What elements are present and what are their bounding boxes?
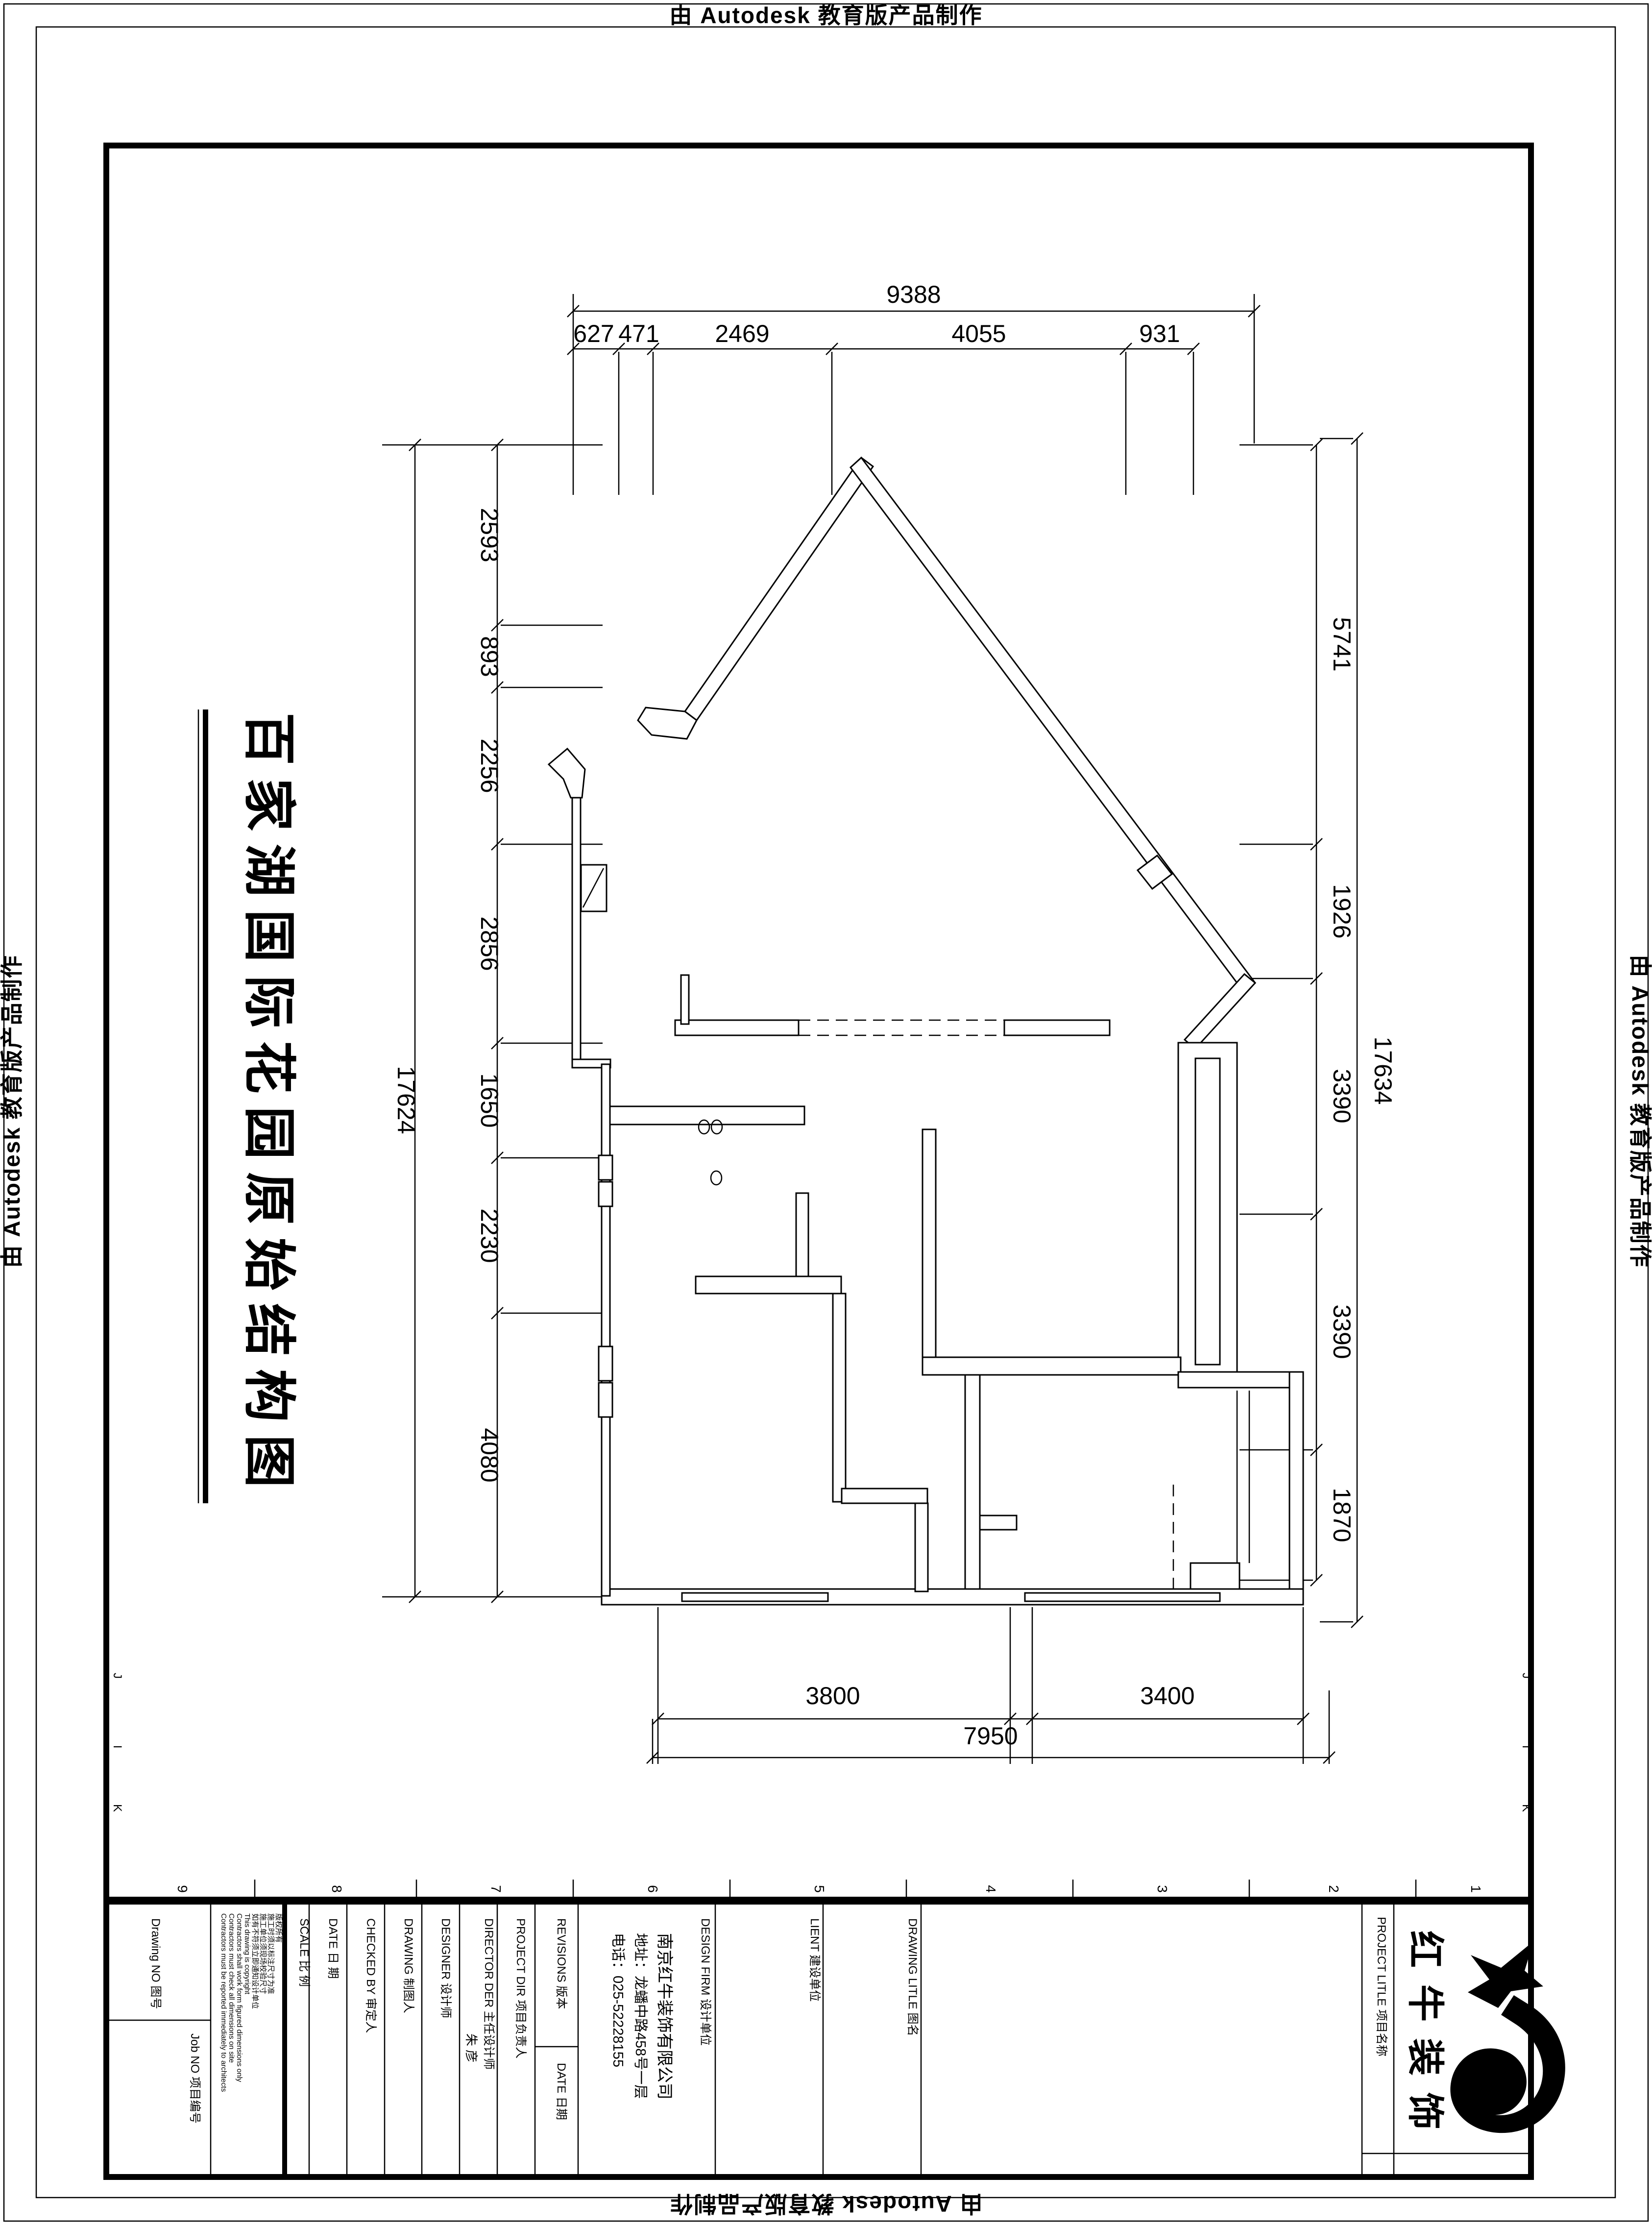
dim-label: 2593 xyxy=(476,508,503,562)
firm-phone: 电话：025-52228155 xyxy=(610,1933,626,2067)
grid-number: 2 xyxy=(1326,1885,1341,1893)
drawing-no-label: Drawing NO 图号 xyxy=(149,1918,162,2009)
wall-outer-left-upper xyxy=(572,791,581,1067)
drawing-label: DRAWING 制图人 xyxy=(402,1918,415,2013)
wall-outer-right xyxy=(1289,1372,1303,1605)
logo-text: 红牛装饰 xyxy=(1404,1931,1446,2146)
dim-label: 9388 xyxy=(886,281,941,308)
project-dir-label: PROJECT DIR 项目负责人 xyxy=(514,1918,527,2058)
door-jamb xyxy=(599,1383,612,1417)
copyright-line: Contractors must check all dimensions on… xyxy=(227,1913,236,2063)
dim-label: 2856 xyxy=(476,916,503,971)
director-label: DIRECTOR DER 主任设计师 xyxy=(482,1918,495,2070)
door-jamb xyxy=(599,1155,612,1180)
dim-label: 5741 xyxy=(1328,617,1356,671)
dim-label: 2469 xyxy=(715,320,769,347)
dimension-bottom: 3800 3400 7950 xyxy=(647,1607,1335,1764)
dim-label: 3800 xyxy=(805,1682,860,1710)
dim-label: 17634 xyxy=(1369,1036,1397,1104)
grid-letter: I xyxy=(111,1745,124,1749)
wall-diagonal-corner xyxy=(1185,974,1255,1049)
dim-label: 1650 xyxy=(476,1073,503,1127)
design-firm-label: DESIGN FIRM 设计单位 xyxy=(699,1918,712,2046)
redbull-logo-icon xyxy=(1450,1941,1565,2133)
wall-diagonal-right xyxy=(850,458,1255,993)
dim-label: 627 xyxy=(573,320,614,347)
dim-label: 3390 xyxy=(1328,1304,1356,1359)
watermark-left: 由 Autodesk 教育版产品制作 xyxy=(0,954,24,1268)
watermark-top: 由 Autodesk 教育版产品制作 xyxy=(669,2,982,28)
wall-opening-dashed xyxy=(799,1020,1004,1035)
grid-number: 9 xyxy=(175,1885,190,1893)
dim-label: 2230 xyxy=(476,1208,503,1263)
grid-letter: I xyxy=(1520,1745,1533,1749)
grid-number: 6 xyxy=(645,1885,660,1893)
window-bottom-right xyxy=(1025,1593,1220,1601)
cad-canvas: 由 Autodesk 教育版产品制作 由 Autodesk 教育版产品制作 由 … xyxy=(0,0,1652,2225)
project-title-label: PROJECT LITLE 项目名称 xyxy=(1375,1917,1388,2056)
grid-number: 4 xyxy=(983,1885,998,1893)
title-block-dividers xyxy=(211,1905,1394,2177)
wall-diagonal-left xyxy=(685,458,873,720)
wall-bath-vertical xyxy=(915,1503,928,1591)
wall-hall-horizontal xyxy=(696,1276,841,1294)
wall-mid-horizontal xyxy=(675,1020,799,1035)
watermark-right: 由 Autodesk 教育版产品制作 xyxy=(1628,954,1652,1268)
drawing-sheet: 由 Autodesk 教育版产品制作 由 Autodesk 教育版产品制作 由 … xyxy=(0,0,1652,2225)
balcony-inner xyxy=(1195,1058,1220,1365)
grid-number: 8 xyxy=(329,1885,344,1893)
copyright-line: Contractors shall work form figured dime… xyxy=(235,1913,243,2082)
copyright-line: 施工单位须现场校验尺寸 xyxy=(259,1913,267,1994)
dim-label: 931 xyxy=(1139,320,1180,347)
wall-room-left xyxy=(923,1129,936,1360)
window-bottom-left xyxy=(682,1593,828,1601)
drawing-title-label: DRAWING LITLE 图名 xyxy=(906,1918,919,2036)
dim-label: 1926 xyxy=(1328,884,1356,938)
firm-name: 南京红牛装饰有限公司 xyxy=(655,1933,674,2100)
door-jamb xyxy=(599,1182,612,1206)
grid-letter: K xyxy=(1520,1804,1533,1812)
revisions-date-label: DATE 日期 xyxy=(555,2063,568,2120)
title-block-top-bar xyxy=(106,1897,1531,1905)
revisions-label: REVISIONS 版本 xyxy=(555,1918,568,2009)
grid-column-numbers: 9 8 7 6 5 4 3 2 1 xyxy=(175,1885,1483,1893)
copyright-notes: 版权所有 施工时须以标注尺寸为准 施工单位须现场校验尺寸 如有不符须立即通知设计… xyxy=(219,1913,283,2092)
title-underline-thick xyxy=(203,709,208,1503)
wall-hall-vertical xyxy=(833,1294,846,1502)
title-block: Drawing NO 图号 Job NO 项目编号 版权所有 施工时须以标注尺寸… xyxy=(106,1897,1565,2177)
wall-stub xyxy=(796,1193,808,1280)
wall-end-cap-top xyxy=(549,749,585,798)
dim-label: 2256 xyxy=(476,738,503,793)
grid-number: 3 xyxy=(1155,1885,1170,1893)
copyright-line: 版权所有 xyxy=(274,1913,283,1943)
page-title: 百家湖国际花园原始结构图 xyxy=(240,712,299,1500)
wall-divider-notch xyxy=(980,1516,1017,1530)
checked-by-label: CHECKED BY 审定人 xyxy=(364,1918,377,2033)
wall-room-bottom xyxy=(923,1357,1181,1375)
wall-lower-right-horizontal xyxy=(1178,1372,1303,1388)
door-jamb xyxy=(599,1346,612,1381)
dim-label: 4080 xyxy=(476,1428,503,1482)
floor-plan xyxy=(549,458,1303,1605)
copyright-line: 如有不符须立即通知设计单位 xyxy=(251,1913,259,2009)
drawing-frame xyxy=(106,146,1531,2177)
copyright-line: This drawing is copyright xyxy=(243,1913,251,1995)
dim-label: 17624 xyxy=(392,1066,420,1134)
date-label: DATE 日 期 xyxy=(326,1918,340,1979)
watermark-bottom: 由 Autodesk 教育版产品制作 xyxy=(669,2191,982,2217)
grid-letter: K xyxy=(111,1804,124,1812)
dim-label: 4055 xyxy=(951,320,1006,347)
copyright-line: 施工时须以标注尺寸为准 xyxy=(267,1913,275,1994)
sink-icon xyxy=(711,1171,722,1185)
title-block-row-lines xyxy=(106,2020,1531,2153)
director-value: 朱 彦 xyxy=(464,2033,479,2062)
grid-letter: J xyxy=(1520,1673,1533,1679)
wall-outer-left-lower xyxy=(602,1064,610,1596)
wall-mid-horizontal xyxy=(1004,1020,1110,1035)
scale-label: SCALE 比 例 xyxy=(297,1918,311,1987)
dim-label: 1870 xyxy=(1328,1488,1356,1542)
dimension-right: 5741 1926 3390 3390 1870 17634 xyxy=(1239,433,1397,1628)
grid-number: 7 xyxy=(488,1885,504,1893)
grid-number: 1 xyxy=(1468,1885,1483,1893)
dimension-top: 9388 627 471 2469 4055 931 xyxy=(567,281,1260,495)
wall-room-divider xyxy=(965,1375,980,1589)
dimension-left: 2593 893 2256 2856 1650 2230 4080 17624 xyxy=(382,439,603,1603)
dim-label: 3400 xyxy=(1140,1682,1194,1710)
copyright-line: Contractors must be reported immediately… xyxy=(219,1913,228,2092)
dim-label: 471 xyxy=(618,320,659,347)
title-block-thick-divider xyxy=(282,1905,287,2177)
client-label: LIENT 建设单位 xyxy=(808,1918,821,2002)
dim-label: 893 xyxy=(476,636,503,677)
grid-letter: J xyxy=(111,1673,124,1679)
dim-label: 7950 xyxy=(963,1722,1018,1750)
designer-label: DESIGNER 设计师 xyxy=(439,1918,452,2018)
wall-cap xyxy=(681,975,689,1024)
firm-address: 地址：龙蟠中路458号一层 xyxy=(632,1933,649,2099)
wall-bath-horizontal xyxy=(842,1489,927,1503)
dim-label: 3390 xyxy=(1328,1069,1356,1123)
job-no-label: Job NO 项目编号 xyxy=(188,2033,201,2124)
wall-inner-lines xyxy=(1237,1391,1249,1563)
grid-number: 5 xyxy=(812,1885,827,1893)
